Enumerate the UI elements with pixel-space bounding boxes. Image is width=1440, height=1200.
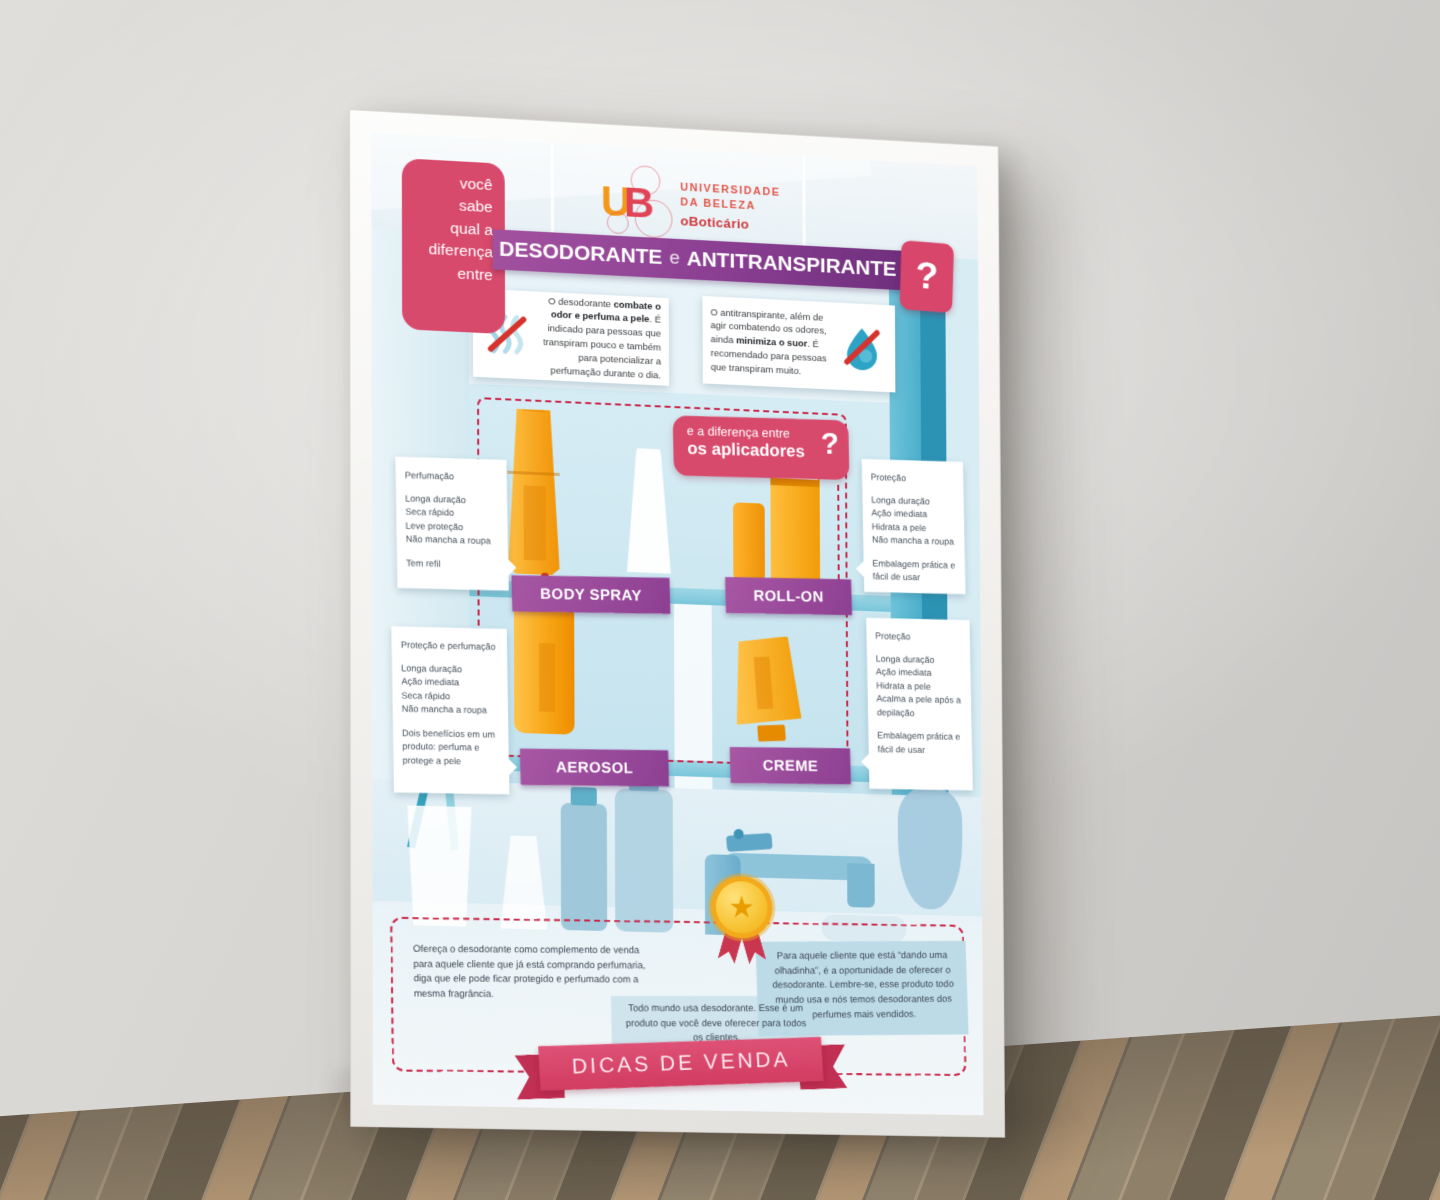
definition-text-bold: minimiza o suor <box>736 335 807 349</box>
star-icon: ★ <box>711 875 773 939</box>
label-roll-on: ROLL-ON <box>725 577 852 615</box>
faucet-handle <box>726 833 773 852</box>
note-footer: Tem refil <box>406 556 499 572</box>
boticario-wordmark: oBoticário <box>680 212 780 235</box>
medal-icon: ★ <box>711 875 773 939</box>
note-item: Não mancha a roupa <box>406 533 499 549</box>
applicators-question-mark: ? <box>821 428 840 462</box>
logo-swirl-icon <box>635 199 673 239</box>
cabinet-seam <box>802 157 805 251</box>
applicators-question-badge: e a diferença entre os aplicadores ? <box>673 416 850 480</box>
applicators-badge-line2: os aplicadores <box>687 439 816 462</box>
bottle-illustration <box>615 788 673 932</box>
note-footer: Dois benefícios em um produto: perfuma e… <box>402 726 500 769</box>
sweat-drop-slash-icon <box>836 323 887 371</box>
question-mark-badge: ? <box>900 240 954 313</box>
note-footer: Embalagem prática e fácil de usar <box>872 557 956 586</box>
brand-logo: UB UNIVERSIDADE DA BELEZA oBoticário <box>601 171 781 240</box>
sales-tip-right: Para aquele cliente que está “dando uma … <box>764 949 963 1024</box>
ribbon-banner: DICAS DE VENDA <box>538 1037 823 1091</box>
note-item: Acalma a pele após a depilação <box>876 692 962 720</box>
aerosol-label-panel <box>539 643 555 712</box>
university-name: UNIVERSIDADE DA BELEZA oBoticário <box>680 181 780 236</box>
body-spray-note: Perfumação Longa duração Seca rápido Lev… <box>395 457 508 591</box>
note-title: Proteção e perfumação <box>401 639 498 655</box>
title-term-antitranspirante: ANTITRANSPIRANTE <box>687 247 897 282</box>
note-item: Ação imediata <box>876 666 962 681</box>
creme-note: Proteção Longa duração Ação imediata Hid… <box>866 618 973 791</box>
toothbrush-cup-illustration <box>403 805 476 927</box>
label-aerosol: AEROSOL <box>520 749 669 787</box>
definition-text-part: O desodorante <box>548 296 613 310</box>
aerosol-note: Proteção e perfumação Longa duração Ação… <box>391 626 509 794</box>
note-title: Proteção <box>875 630 961 645</box>
title-connector: e <box>662 247 686 270</box>
title-term-desodorante: DESODORANTE <box>499 238 662 270</box>
bottle-illustration <box>561 803 608 931</box>
photo-scene: você sabe qual a diferença entre UB UNIV… <box>0 0 1440 1200</box>
poster-frame: você sabe qual a diferença entre UB UNIV… <box>349 109 1005 1138</box>
faucet-spout-end <box>847 863 875 908</box>
antiperspirant-definition-text: O antitranspirante, além de agir combate… <box>710 306 836 380</box>
note-item: Não mancha a roupa <box>872 534 956 550</box>
label-creme: CREME <box>730 747 851 784</box>
note-item: Não mancha a roupa <box>402 702 499 718</box>
cabinet-seam <box>551 142 554 237</box>
intro-question-box: você sabe qual a diferença entre <box>402 158 505 334</box>
sales-tip-left: Ofereça o desodorante como complemento d… <box>413 943 654 1004</box>
deodorant-definition-text: O desodorante combate o odor e perfuma a… <box>533 294 661 383</box>
note-item: Ação imediata <box>401 675 498 691</box>
label-body-spray: BODY SPRAY <box>511 575 670 614</box>
question-mark: ? <box>915 255 939 299</box>
ub-logo-mark: UB <box>601 171 671 234</box>
poster: você sabe qual a diferença entre UB UNIV… <box>371 132 983 1115</box>
roll-on-cap-illustration <box>733 502 765 581</box>
logo-swirl-icon <box>607 211 629 234</box>
ribbon-label: DICAS DE VENDA <box>571 1048 791 1080</box>
body-spray-label-panel <box>524 485 546 560</box>
note-footer: Embalagem prática e fácil de usar <box>877 729 963 757</box>
cream-cap <box>757 725 786 742</box>
antiperspirant-definition-box: O antitranspirante, além de agir combate… <box>702 296 895 393</box>
roll-on-note: Proteção Longa duração Ação imediata Hid… <box>862 459 966 594</box>
intro-question-text: você sabe qual a diferença entre <box>371 167 493 288</box>
note-title: Perfumação <box>405 469 498 485</box>
note-title: Proteção <box>871 471 955 487</box>
